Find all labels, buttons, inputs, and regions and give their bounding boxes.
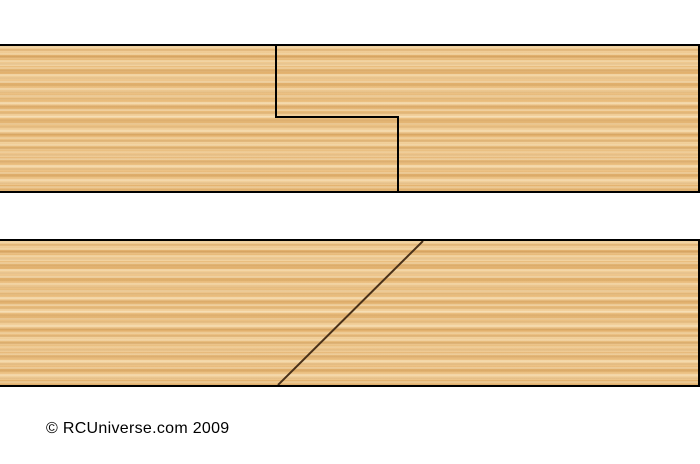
top-board-half-lap-joint bbox=[0, 44, 700, 193]
scarf-joint-diagonal-line bbox=[278, 241, 423, 385]
copyright-text: © RCUniverse.com 2009 bbox=[46, 419, 230, 439]
scarf-joint-line-layer bbox=[0, 241, 698, 385]
half-lap-joint-vertical-line-right bbox=[397, 116, 399, 191]
diagram-canvas: © RCUniverse.com 2009 bbox=[0, 0, 700, 464]
half-lap-joint-horizontal-line bbox=[275, 116, 399, 118]
bottom-board-scarf-joint bbox=[0, 239, 700, 387]
half-lap-joint-vertical-line-left bbox=[275, 46, 277, 117]
